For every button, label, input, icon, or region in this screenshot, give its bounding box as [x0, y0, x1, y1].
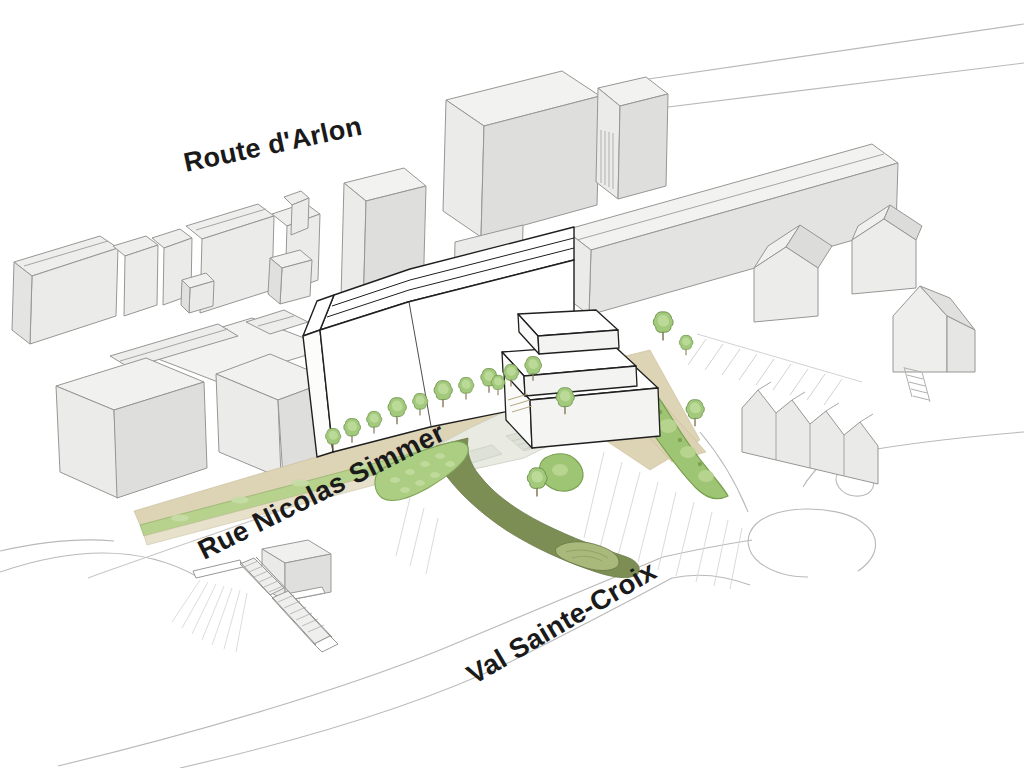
street-label-val-sainte-croix: Val Sainte-Croix: [461, 555, 662, 691]
retaining-wall: [193, 560, 243, 578]
tree: [527, 468, 547, 497]
val-road-west-lower: [672, 575, 750, 585]
stairs-complex: [172, 540, 338, 652]
parking-stall-lines: [688, 334, 862, 405]
site-plan-page: Route d'Arlon Rue Nicolas Simmer Val Sai…: [0, 0, 1024, 768]
simmer-curve-outer: [0, 553, 198, 577]
building-side: [618, 94, 668, 199]
building-front: [596, 88, 620, 199]
lawn-mound: [556, 542, 619, 571]
route-arlon-road-edge: [628, 24, 1024, 82]
val-road-west-upper: [663, 540, 752, 557]
proposed-stepped-building: [502, 310, 660, 448]
roundabout: [748, 509, 875, 577]
site-plan-illustration: Route d'Arlon Rue Nicolas Simmer Val Sai…: [0, 0, 1024, 768]
building-side: [12, 262, 32, 344]
simmer-curve-inner: [0, 540, 114, 551]
tree: [679, 335, 693, 355]
val-road-upper-edge: [58, 557, 663, 766]
building-front: [124, 245, 158, 316]
slope-hatch-stairs: [172, 580, 247, 652]
street-label-route-arlon: Route d'Arlon: [181, 111, 365, 178]
tree: [653, 312, 673, 341]
